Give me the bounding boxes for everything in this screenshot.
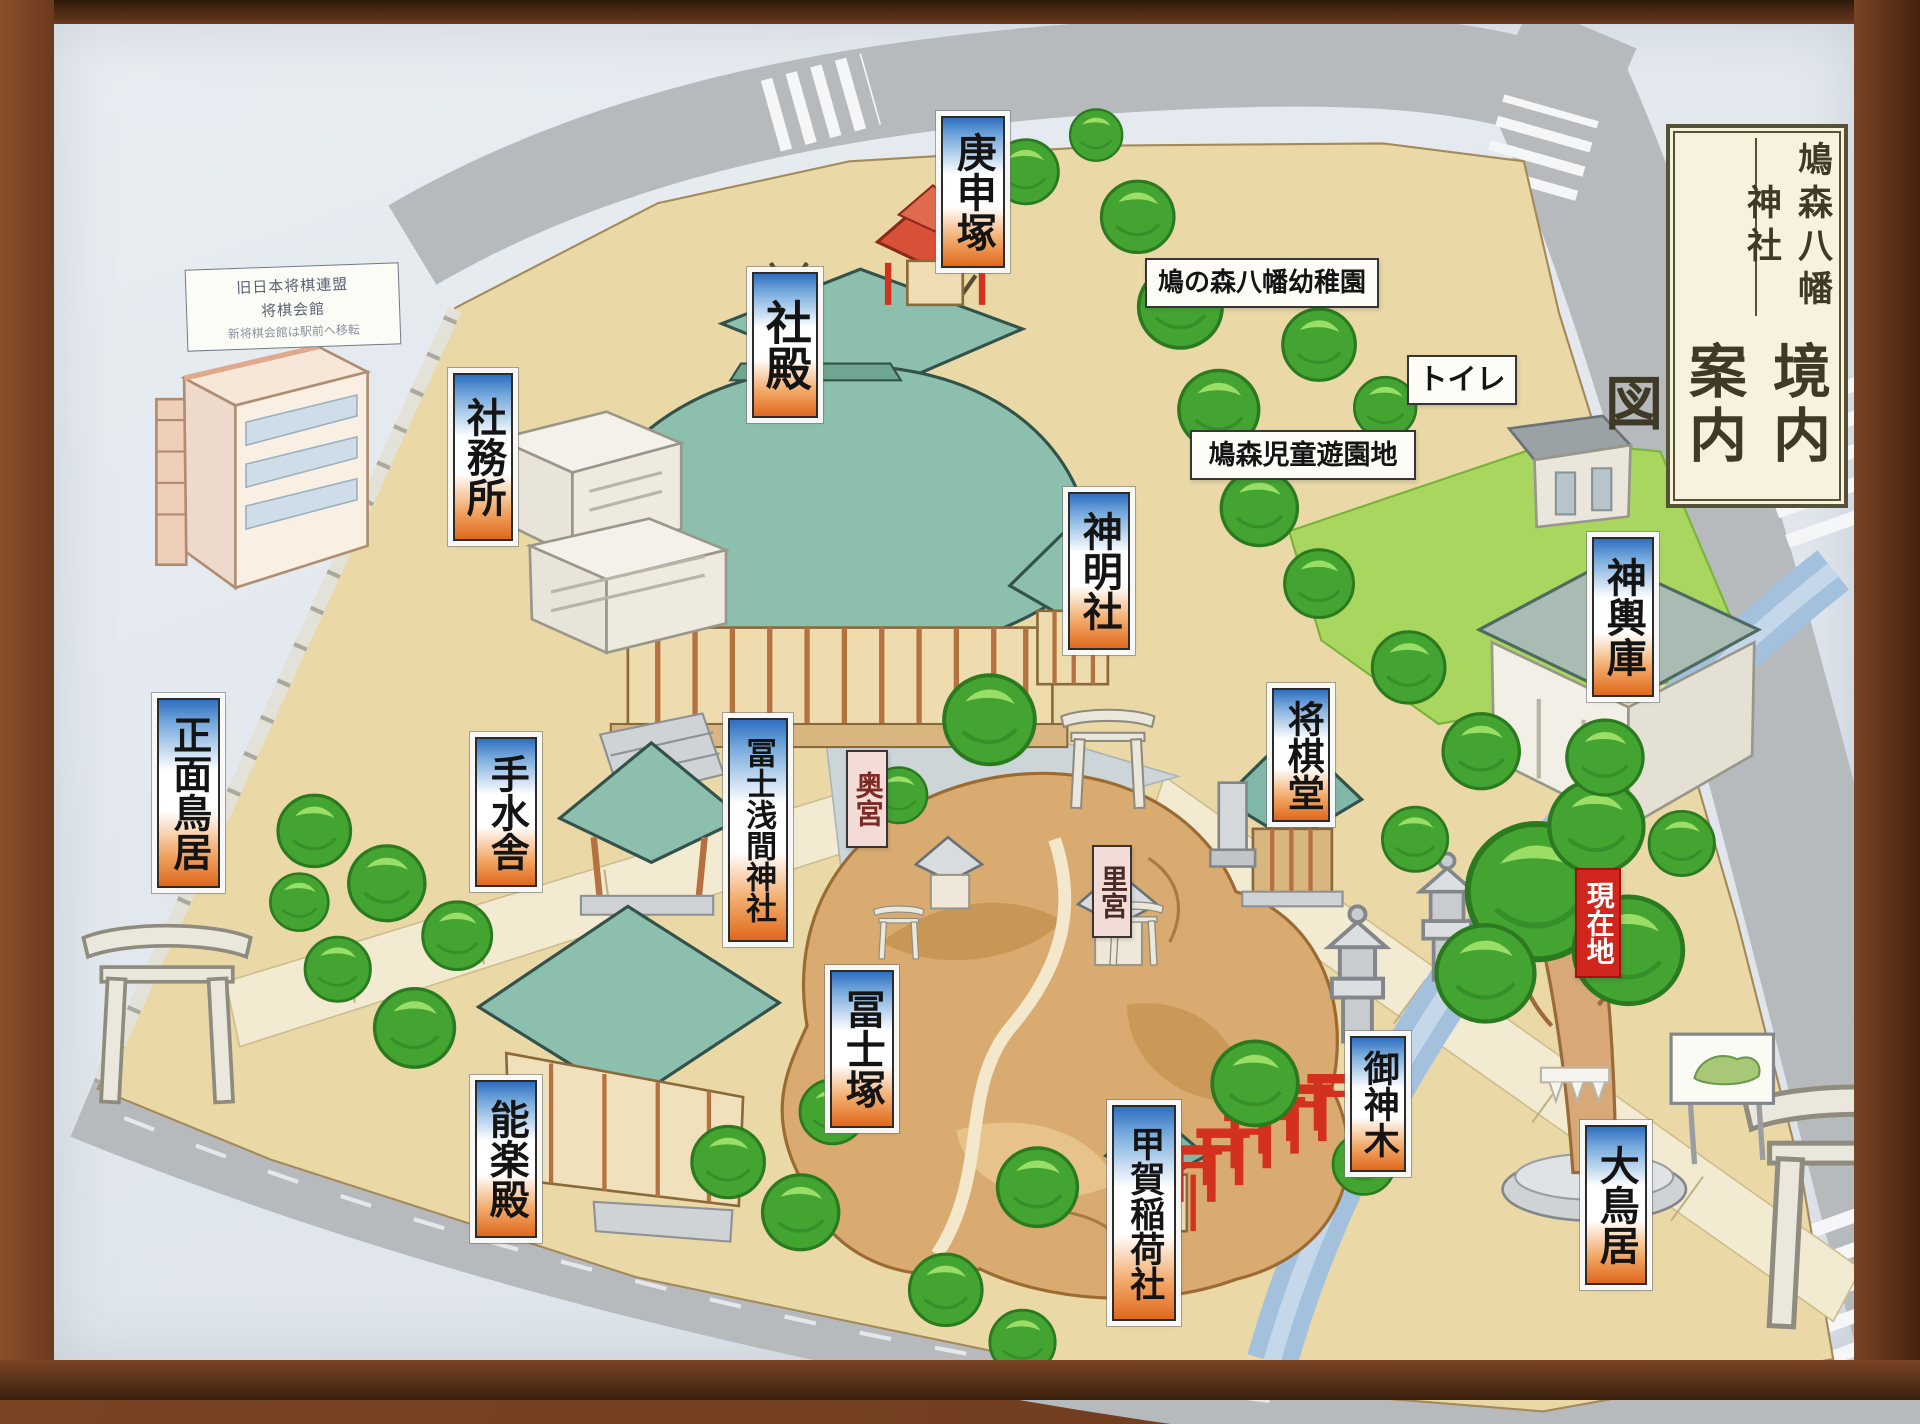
label-fujizuka: 冨士塚 xyxy=(830,970,894,1128)
label-playground: 鳩森児童遊園地 xyxy=(1190,430,1416,480)
label-koga-inarisha: 甲賀稲荷社 xyxy=(1112,1105,1176,1321)
label-nogakuden: 能楽殿 xyxy=(475,1080,537,1238)
shogi-hall-note: 旧日本将棋連盟 将棋会館 新将棋会館は駅前へ移転 xyxy=(185,262,402,351)
label-goshinboku: 御神木 xyxy=(1350,1036,1406,1172)
label-shogido: 将棋堂 xyxy=(1272,688,1330,822)
wood-frame-right xyxy=(1854,0,1920,1400)
map-title-box: 鳩森八幡神社 境内案内図 xyxy=(1666,124,1848,508)
label-shomen-torii: 正面鳥居 xyxy=(157,698,220,888)
note-line-1: 旧日本将棋連盟 xyxy=(236,273,349,298)
signboard-photo: { "title": { "shrine": "鳩森八幡神社", "map": … xyxy=(0,0,1920,1400)
label-kindergarten: 鳩の森八幡幼稚園 xyxy=(1145,258,1379,308)
label-okumiya: 奥宮 xyxy=(846,750,888,848)
map-labels-layer: 庚申塚社殿社務所神明社神輿庫将棋堂正面鳥居手水舎冨士浅間神社奥宮里宮冨士塚能楽殿… xyxy=(54,24,1920,1424)
label-otorii: 大鳥居 xyxy=(1585,1125,1647,1285)
label-mikoshiko: 神輿庫 xyxy=(1592,537,1654,697)
label-shaden: 社殿 xyxy=(752,272,818,418)
shrine-name: 鳩森八幡神社 xyxy=(1755,138,1838,316)
label-shinmeisha: 神明社 xyxy=(1068,492,1130,650)
label-fuji-sengen-jinja: 冨士浅間神社 xyxy=(728,718,788,942)
note-line-3: 新将棋会館は駅前へ移転 xyxy=(228,320,361,342)
wood-frame-top xyxy=(0,0,1920,24)
map-title: 境内案内図 xyxy=(1757,316,1838,494)
wood-frame-bottom xyxy=(0,1360,1920,1400)
label-genzaichi: 現在地 xyxy=(1575,868,1621,978)
label-koshinzuka: 庚申塚 xyxy=(941,116,1005,268)
label-toilet: トイレ xyxy=(1407,355,1517,405)
label-temizusha: 手水舎 xyxy=(475,737,537,887)
map-paper: 庚申塚社殿社務所神明社神輿庫将棋堂正面鳥居手水舎冨士浅間神社奥宮里宮冨士塚能楽殿… xyxy=(54,24,1854,1360)
wood-frame-left xyxy=(0,0,54,1400)
label-shamusho: 社務所 xyxy=(453,373,513,541)
label-satomiya: 里宮 xyxy=(1092,845,1132,938)
note-line-2: 将棋会館 xyxy=(261,297,326,320)
